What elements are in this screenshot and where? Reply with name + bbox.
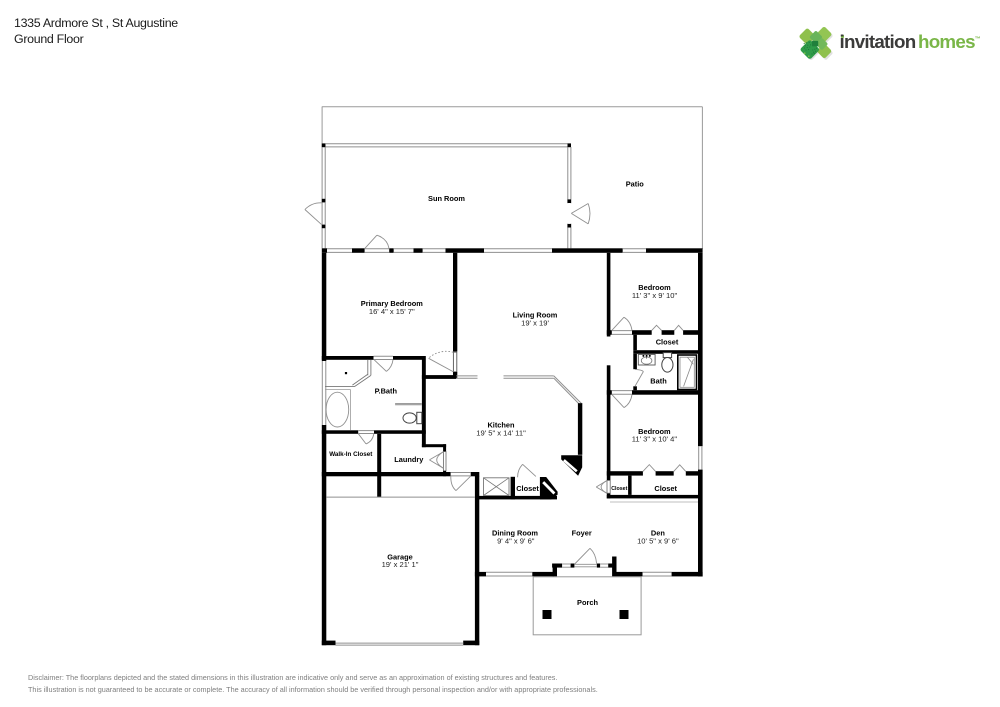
- svg-text:Porch: Porch: [577, 598, 598, 607]
- svg-text:11' 3" x 9' 10": 11' 3" x 9' 10": [632, 291, 678, 300]
- svg-text:Walk-In Closet: Walk-In Closet: [329, 451, 373, 458]
- svg-text:11' 3" x 10' 4": 11' 3" x 10' 4": [632, 435, 678, 444]
- svg-text:Bath: Bath: [650, 376, 667, 385]
- svg-text:Sun Room: Sun Room: [428, 194, 465, 203]
- svg-text:19' x 21' 1": 19' x 21' 1": [382, 560, 419, 569]
- svg-text:19' x 19': 19' x 19': [521, 318, 549, 327]
- svg-text:Closet: Closet: [611, 486, 627, 492]
- svg-text:Laundry: Laundry: [394, 455, 424, 464]
- svg-text:Closet: Closet: [656, 337, 679, 346]
- svg-text:16' 4" x 15' 7": 16' 4" x 15' 7": [369, 307, 415, 316]
- svg-text:10' 5" x 9' 6": 10' 5" x 9' 6": [637, 536, 679, 545]
- svg-text:9' 4" x 9' 6": 9' 4" x 9' 6": [497, 536, 535, 545]
- svg-text:19' 5" x 14' 11": 19' 5" x 14' 11": [476, 428, 526, 437]
- svg-text:Closet: Closet: [516, 484, 539, 493]
- svg-text:P.Bath: P.Bath: [375, 386, 398, 395]
- svg-text:Closet: Closet: [654, 484, 677, 493]
- svg-text:Patio: Patio: [626, 179, 645, 188]
- svg-text:Foyer: Foyer: [572, 529, 592, 538]
